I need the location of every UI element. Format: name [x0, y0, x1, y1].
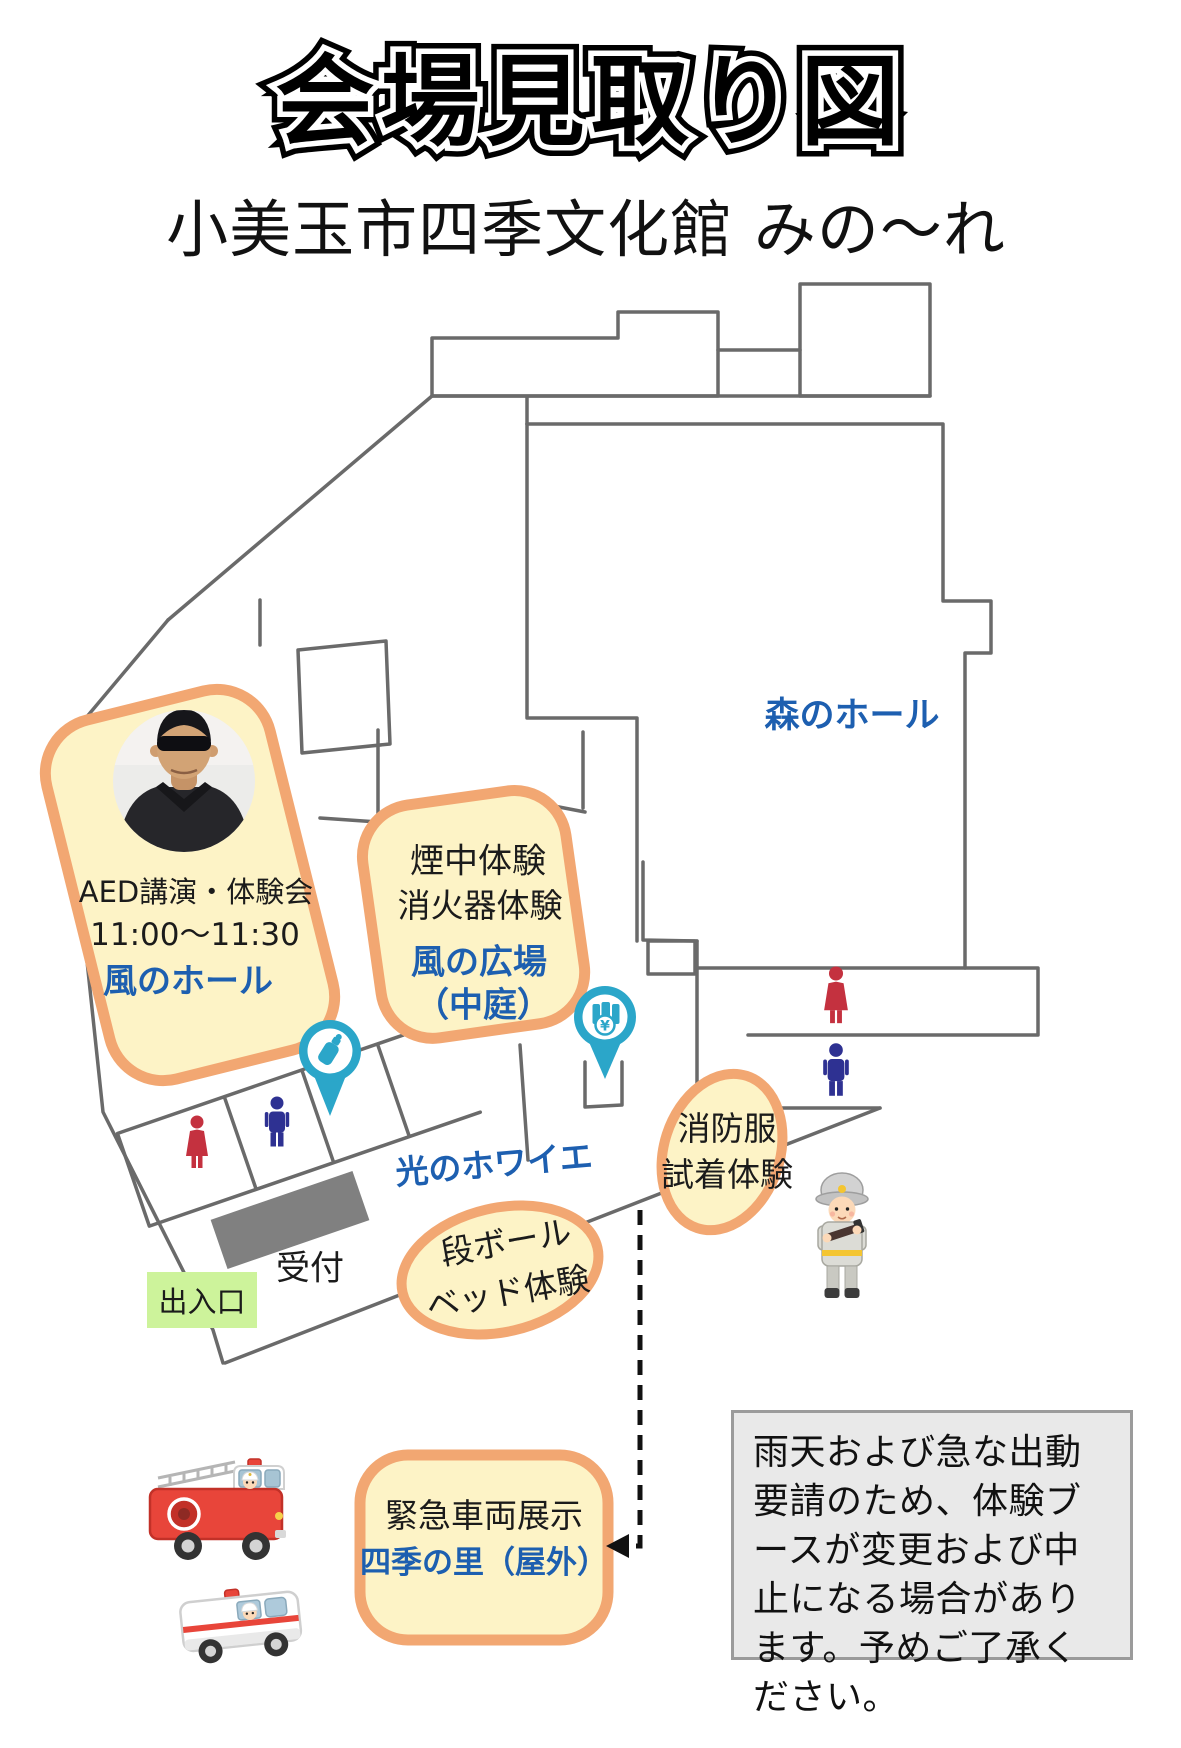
courtyard-label: （中庭） [415, 987, 551, 1024]
mori-hall-label: 森のホール [764, 697, 939, 736]
fire-truck-illustration [150, 1459, 286, 1560]
fire-suit-label-2: 試着体験 [661, 1157, 793, 1193]
entrance-label: 出入口 [158, 1279, 245, 1321]
shiki-no-sato-label: 四季の里（屋外） [360, 1546, 608, 1580]
fire-suit-highlight [642, 1058, 802, 1246]
aed-session-label: AED講演・体験会 [79, 877, 314, 909]
yen-symbol: ¥ [600, 1019, 610, 1035]
male-restroom-icon [823, 1043, 849, 1096]
smoke-experience-label: 煙中体験 [410, 843, 546, 880]
extinguisher-experience-label: 消火器体験 [398, 888, 563, 924]
baby-bottle-pin-icon [299, 1020, 361, 1116]
fire-suit-label-1: 消防服 [678, 1111, 777, 1147]
kaze-plaza-label: 風の広場 [411, 944, 547, 981]
emergency-vehicles-label: 緊急車両展示 [385, 1498, 583, 1534]
male-restroom-icon [265, 1097, 289, 1147]
weather-notice: 雨天および急な出動要請のため、体験ブースが変更および中止になる場合があります。予… [731, 1410, 1133, 1660]
speaker-photo [113, 709, 255, 852]
aed-time-label: 11:00〜11:30 [90, 918, 300, 952]
venue-floor-plan-poster: ¥ [0, 0, 1181, 1748]
ambulance-illustration [179, 1583, 304, 1666]
reception-label: 受付 [276, 1250, 344, 1287]
venue-name: 小美玉市四季文化館 みの〜れ [166, 179, 1006, 269]
female-restroom-icon [186, 1116, 208, 1169]
female-restroom-icon [824, 966, 848, 1023]
entrance-label-box: 出入口 [147, 1272, 257, 1328]
poster-title-text: 会場見取り図 [276, 46, 906, 160]
firefighter-character [816, 1173, 868, 1298]
poster-title: 会場見取り図 会場見取り図 会場見取り図 [276, 46, 906, 160]
kaze-hall-label: 風のホール [103, 963, 273, 1000]
